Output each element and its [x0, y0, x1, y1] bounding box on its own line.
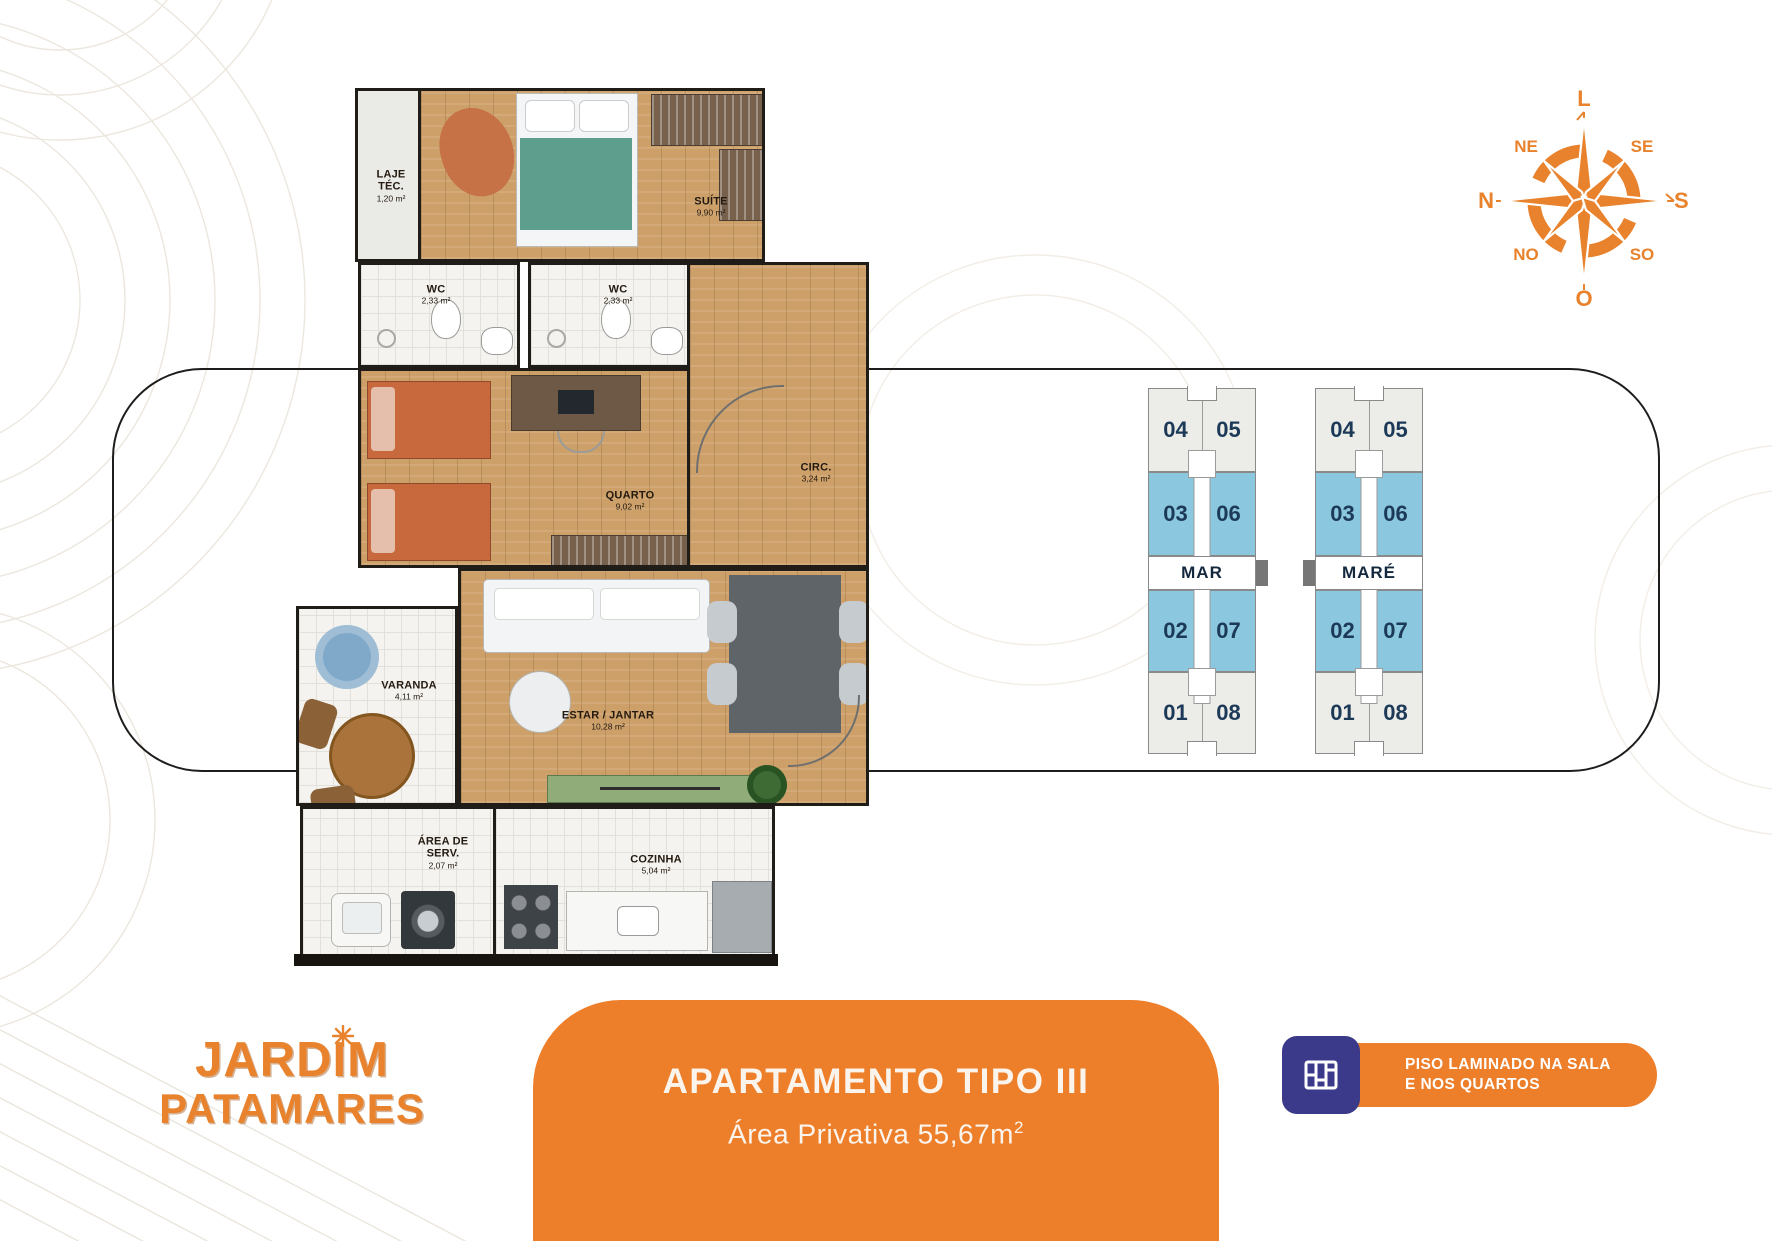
- room-name: SUÍTE: [694, 196, 727, 208]
- desk: [511, 375, 641, 431]
- tower-notch: [1187, 386, 1217, 401]
- tower-core-box: [1188, 668, 1216, 696]
- compass-label-so: SO: [1630, 245, 1655, 264]
- room-label-suite: SUÍTE 9,90 m²: [694, 196, 727, 219]
- room-name: WC: [604, 284, 633, 296]
- tower-name-band: MARÉ: [1315, 556, 1423, 590]
- room-label-area-servico: ÁREA DE SERV. 2,07 m²: [411, 835, 475, 870]
- compass-label-no: NO: [1513, 245, 1539, 264]
- room-area: 5,04 m²: [630, 867, 682, 877]
- apartment-banner: APARTAMENTO TIPO III Área Privativa 55,6…: [533, 1000, 1219, 1241]
- room-area: 2,33 m²: [422, 297, 451, 307]
- tower-name: MARÉ: [1342, 563, 1396, 583]
- dining-chair: [707, 601, 737, 643]
- compass-label-se: SE: [1631, 137, 1654, 156]
- room-wc-2: WC 2,33 m²: [528, 262, 690, 368]
- marketing-floorplan-page: LAJE TÉC. 1,20 m² SUÍTE 9,90 m²: [0, 0, 1772, 1241]
- suite-double-bed: [516, 93, 638, 247]
- monitor: [558, 390, 594, 414]
- pillow: [579, 100, 629, 132]
- room-varanda: VARANDA 4,11 m²: [296, 606, 458, 806]
- blanket: [520, 138, 632, 230]
- room-area: 2,07 m²: [411, 861, 475, 871]
- logo-sunburst-icon: [332, 1025, 354, 1047]
- room-area: 10,28 m²: [562, 723, 654, 733]
- room-area: 3,24 m²: [801, 475, 832, 485]
- room-area: 4,11 m²: [381, 693, 437, 703]
- tank-basin: [342, 902, 382, 934]
- armchair: [315, 625, 379, 689]
- room-area-servico: ÁREA DE SERV. 2,07 m²: [300, 806, 496, 958]
- pillow: [371, 489, 395, 553]
- room-laje-tec: LAJE TÉC. 1,20 m²: [355, 88, 421, 262]
- feature-line-2: E NOS QUARTOS: [1405, 1075, 1657, 1095]
- room-name: COZINHA: [630, 854, 682, 866]
- floorplan: LAJE TÉC. 1,20 m² SUÍTE 9,90 m²: [288, 78, 878, 978]
- desk-chair: [557, 431, 605, 453]
- tower-core-box: [1188, 450, 1216, 478]
- room-name: ESTAR / JANTAR: [562, 710, 654, 722]
- feature-pill: PISO LAMINADO NA SALA E NOS QUARTOS: [1313, 1043, 1657, 1107]
- tower-notch: [1354, 741, 1384, 756]
- room-suite: SUÍTE 9,90 m²: [418, 88, 765, 262]
- room-cozinha: COZINHA 5,04 m²: [493, 806, 775, 958]
- room-label-cozinha: COZINHA 5,04 m²: [630, 854, 682, 877]
- compass-label-o: O: [1575, 286, 1592, 308]
- room-quarto: QUARTO 9,02 m²: [358, 368, 690, 568]
- room-label-quarto: QUARTO 9,02 m²: [606, 490, 655, 513]
- room-name: LAJE TÉC.: [377, 168, 406, 193]
- sideboard: [547, 775, 773, 803]
- room-circulacao: CIRC. 3,24 m²: [687, 262, 869, 568]
- room-area: 9,02 m²: [606, 503, 655, 513]
- room-area: 2,33 m²: [604, 297, 633, 307]
- tower-notch: [1187, 741, 1217, 756]
- compass-graphic: L S O N NE SE NO SO: [1478, 90, 1690, 308]
- pillow: [525, 100, 575, 132]
- suite-rug: [429, 98, 525, 206]
- room-label-circ: CIRC. 3,24 m²: [801, 462, 832, 485]
- door-arc: [788, 695, 860, 767]
- stove: [504, 885, 558, 949]
- tower-name: MAR: [1181, 563, 1223, 583]
- banner-title: APARTAMENTO TIPO III: [533, 1062, 1219, 1102]
- washing-machine: [401, 891, 455, 949]
- compass-label-n: N: [1478, 188, 1494, 213]
- door-arc: [696, 385, 784, 473]
- banner-subtitle: Área Privativa 55,67m2: [533, 1118, 1219, 1150]
- banner-area-sup: 2: [1014, 1118, 1024, 1137]
- dining-chair: [839, 601, 869, 643]
- room-label-varanda: VARANDA 4,11 m²: [381, 680, 437, 703]
- pillow: [371, 387, 395, 451]
- room-name: CIRC.: [801, 462, 832, 474]
- tower-side-stub: [1256, 560, 1268, 586]
- room-name: VARANDA: [381, 680, 437, 692]
- room-label-laje-tec: LAJE TÉC. 1,20 m²: [377, 168, 406, 203]
- compass-label-s: S: [1674, 188, 1689, 213]
- sofa-cushion: [600, 588, 700, 620]
- sofa: [483, 579, 710, 653]
- room-area: 1,20 m²: [377, 194, 406, 204]
- tower-core-box: [1355, 668, 1383, 696]
- suite-wardrobe: [651, 94, 765, 146]
- room-name: ÁREA DE SERV.: [411, 835, 475, 860]
- project-logo: JARDIM PATAMARES: [142, 1036, 442, 1130]
- dining-chair: [707, 663, 737, 705]
- compass-label-l: L: [1577, 90, 1590, 111]
- room-wc-1: WC 2,33 m²: [358, 262, 520, 368]
- plant: [747, 765, 787, 805]
- quarto-wardrobe: [551, 535, 690, 568]
- sink: [651, 327, 683, 355]
- room-label-wc-2: WC 2,33 m²: [604, 284, 633, 307]
- banner-area-text: Área Privativa 55,67m: [728, 1118, 1014, 1149]
- tower-side-stub: [1303, 560, 1315, 586]
- tower-notch: [1354, 386, 1384, 401]
- exterior-wall: [294, 954, 778, 966]
- chair: [309, 784, 356, 806]
- single-bed: [367, 381, 491, 459]
- keyplan-tower-mare: 04 05 03 06 MARÉ 02 07 01 08: [1315, 388, 1423, 754]
- room-label-estar: ESTAR / JANTAR 10,28 m²: [562, 710, 654, 733]
- kitchen-sink: [617, 906, 659, 936]
- sink: [481, 327, 513, 355]
- room-name: QUARTO: [606, 490, 655, 502]
- logo-word-patamares: PATAMARES: [142, 1088, 442, 1130]
- laundry-tank: [331, 893, 391, 947]
- single-bed: [367, 483, 491, 561]
- shower-drain: [377, 329, 396, 348]
- room-name: WC: [422, 284, 451, 296]
- fridge: [712, 881, 772, 953]
- keyplan-tower-mar: 04 05 03 06 MAR 02 07 01 08: [1148, 388, 1256, 754]
- room-area: 9,90 m²: [694, 209, 727, 219]
- compass-label-ne: NE: [1514, 137, 1538, 156]
- room-estar-jantar: ESTAR / JANTAR 10,28 m²: [458, 568, 869, 806]
- shower-drain: [547, 329, 566, 348]
- feature-line-1: PISO LAMINADO NA SALA: [1405, 1055, 1657, 1075]
- compass-rose: L S O N NE SE NO SO: [1478, 90, 1690, 308]
- sideboard-detail: [600, 787, 720, 790]
- kitchen-counter: [566, 891, 708, 951]
- room-label-wc-1: WC 2,33 m²: [422, 284, 451, 307]
- tower-core-box: [1355, 450, 1383, 478]
- tower-name-band: MAR: [1148, 556, 1256, 590]
- logo-word-jardim: JARDIM: [142, 1036, 442, 1085]
- sofa-cushion: [494, 588, 594, 620]
- laminate-floor-icon: [1282, 1036, 1360, 1114]
